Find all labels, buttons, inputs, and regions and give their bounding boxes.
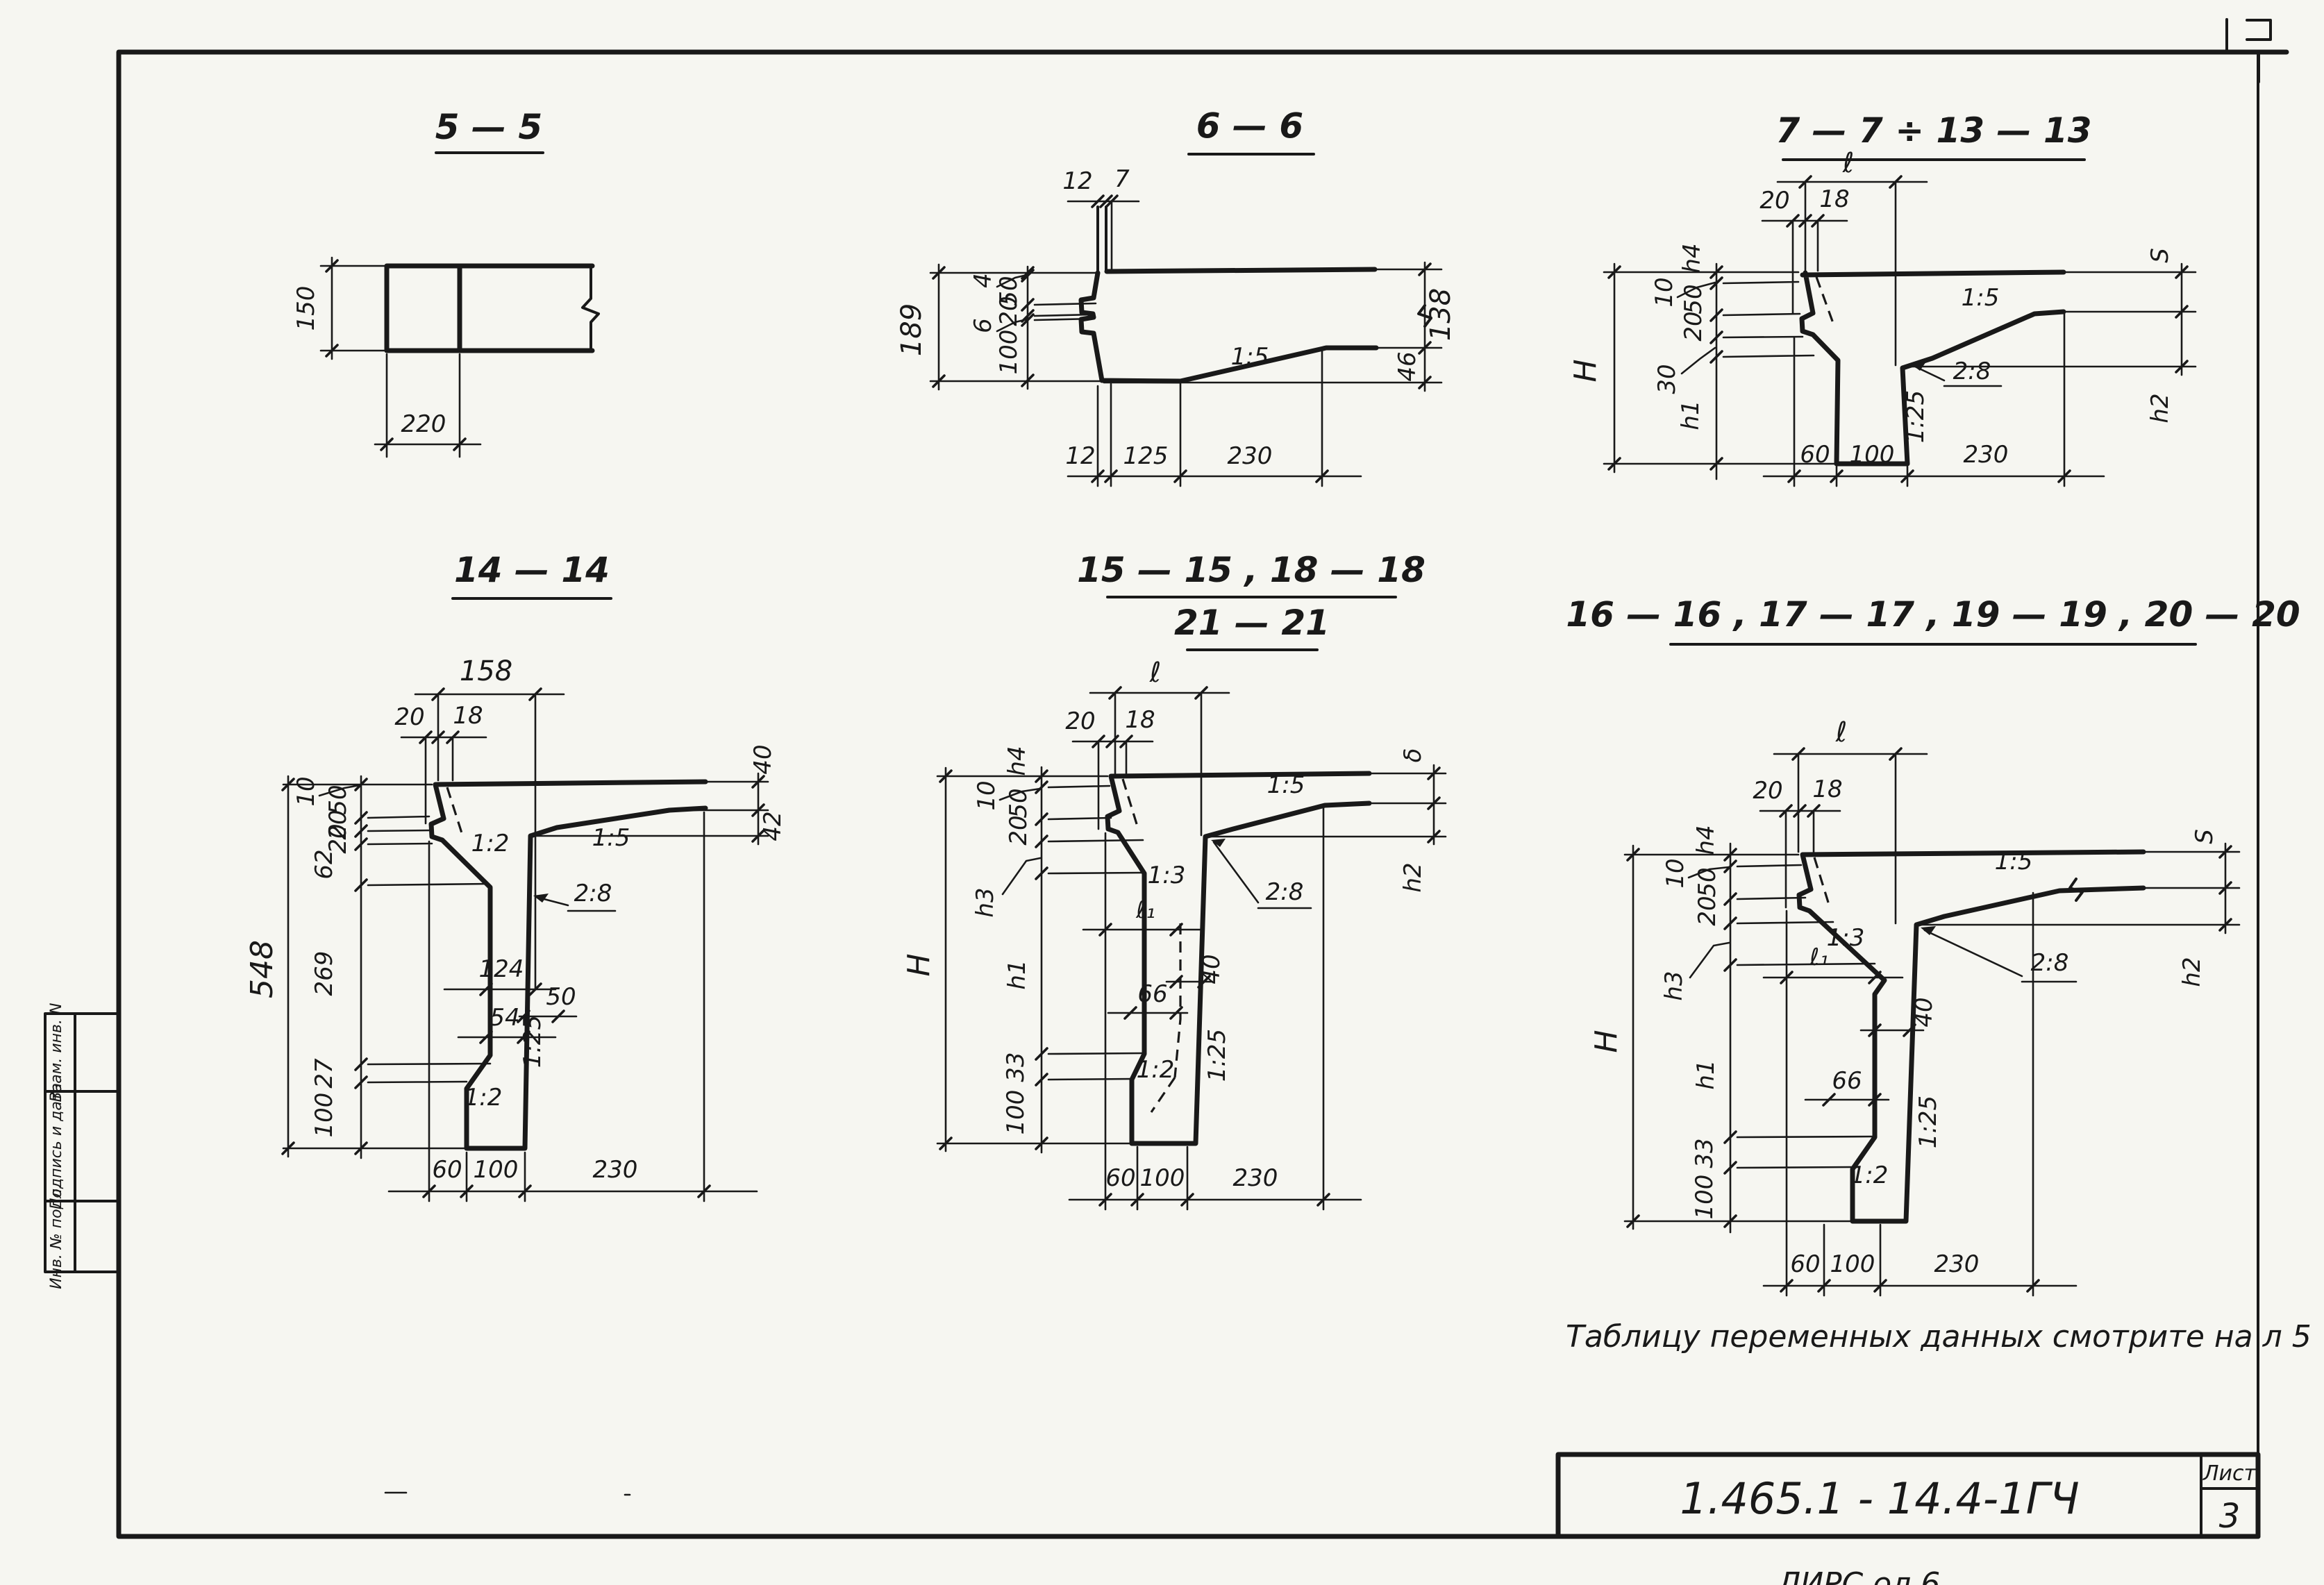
dim-label-54: 54 [490, 1004, 519, 1032]
dim-label: 20 [324, 823, 352, 853]
dim-label-150: 150 [292, 286, 320, 331]
dim-label: 6 [969, 318, 997, 333]
dim-label-l1: ℓ₁ [1809, 944, 1829, 971]
dim-label-20: 20 [1694, 896, 1721, 925]
dim-label: 18 [1819, 185, 1849, 213]
dim-label-delta: δ [1399, 748, 1427, 763]
dim-label: 12 [1065, 442, 1095, 470]
dim-label-h2: h2 [2146, 393, 2174, 423]
section-15-15-18-18-21-21: 15 — 15 , 18 — 18 21 — 21 ℓ 20 18 h4 10 … [901, 550, 1446, 1209]
dim-label: 100 [310, 1093, 338, 1138]
slope-label: 1:25 [519, 1015, 546, 1068]
dim-label-h2: h2 [2178, 957, 2206, 987]
dim-label: 7 [1114, 165, 1130, 193]
slope-label: 1:2 [465, 1084, 503, 1112]
slope-label: 1:5 [1962, 284, 2000, 312]
profile-path [1107, 773, 1369, 1143]
break-mark [583, 266, 599, 351]
dim-label: 125 [1123, 442, 1169, 470]
slope-label: 1:2 [471, 830, 510, 857]
dim-label-H: H [1589, 1030, 1624, 1053]
dim-label: 4 [969, 273, 997, 288]
section-6-6: 6 — 6 12 7 189 4 50 20 6 100 138 46 12 1… [896, 106, 1457, 486]
dim-label-h4: h4 [1692, 825, 1720, 855]
profile-path [387, 266, 592, 351]
dim-label: 60 [1105, 1164, 1135, 1192]
slope-label: 2:8 [1953, 358, 1991, 385]
dim-label-h1: h1 [1003, 959, 1031, 989]
slope-label: 1:5 [1995, 848, 2033, 875]
dim-label: 18 [1812, 775, 1842, 803]
slope-label: 1:2 [1137, 1056, 1175, 1084]
dim-label-33: 33 [1691, 1138, 1719, 1168]
dim-label: 20 [394, 703, 424, 731]
dim-label-548: 548 [244, 940, 280, 998]
profile-path [1802, 272, 2064, 464]
sheet-number: 3 [2219, 1497, 2241, 1536]
section-title: 16 — 16 , 17 — 17 , 19 — 19 , 20 — 20 [1566, 594, 2300, 635]
dim-label: 100 [1850, 441, 1895, 469]
dim-label-10: 10 [1650, 277, 1678, 307]
dim-label-10: 10 [292, 776, 320, 806]
dim-label-30: 30 [1653, 364, 1681, 394]
slope-label: 1:5 [1231, 343, 1269, 371]
dim-label-124: 124 [479, 955, 524, 983]
dim-label-40: 40 [1910, 997, 1938, 1027]
dim-label-50: 50 [1005, 788, 1033, 818]
dim-label-220: 220 [401, 410, 446, 438]
dim-label-66: 66 [1832, 1067, 1862, 1095]
stamp-column: Взам. инв. N Подпись и дата Инв. № подл. [45, 1003, 119, 1289]
profile-path [1081, 269, 1376, 381]
section-title-line2: 21 — 21 [1174, 603, 1330, 643]
section-5-5: 5 — 5 150 220 [292, 107, 599, 457]
dim-label-h3: h3 [1660, 971, 1688, 1000]
dim-label: 60 [1790, 1250, 1820, 1278]
dim-label: 27 [310, 1058, 338, 1089]
dim-label-h1: h1 [1692, 1059, 1720, 1089]
section-title: 5 — 5 [435, 107, 542, 147]
slope-label: 1:3 [1148, 862, 1186, 889]
dim-label: 18 [453, 702, 483, 730]
dim-label-50: 50 [546, 983, 576, 1011]
dim-label: 62 [310, 849, 338, 879]
stray-marks [385, 1493, 630, 1495]
dim-label-50: 50 [1680, 284, 1707, 314]
dim-label: 230 [1233, 1164, 1278, 1192]
dim-label-l: ℓ [1835, 716, 1848, 748]
slope-label: 1:5 [592, 824, 630, 852]
dim-label: 100 [1140, 1164, 1185, 1192]
section-title: 7 — 7 ÷ 13 — 13 [1775, 110, 2091, 151]
dim-label-33: 33 [1002, 1052, 1030, 1082]
dim-label-h2: h2 [1399, 862, 1427, 892]
section-title-line1: 15 — 15 , 18 — 18 [1077, 550, 1426, 590]
dim-label: 230 [1934, 1250, 1980, 1278]
dim-label-20: 20 [1005, 815, 1033, 845]
dim-label-20: 20 [1680, 311, 1707, 341]
dim-label: 100 [1830, 1250, 1875, 1278]
dim-label: 60 [432, 1156, 462, 1184]
dim-label-66: 66 [1137, 980, 1167, 1008]
dim-label-h4: h4 [1003, 746, 1031, 775]
dim-label-42: 42 [759, 811, 787, 841]
dim-label: 20 [995, 296, 1023, 326]
slope-label: 2:8 [2031, 949, 2069, 977]
variable-data-note: Таблицу переменных данных смотрите на л … [1566, 1319, 2312, 1355]
dim-label-50: 50 [1694, 867, 1721, 897]
dim-label-40: 40 [749, 744, 777, 774]
slope-label: 2:8 [574, 880, 612, 907]
sheet-word-label: Лист [2202, 1461, 2257, 1486]
dim-label-10: 10 [973, 780, 1001, 810]
lip-hidden-line [1814, 857, 1829, 905]
rib-lines [1098, 207, 1106, 271]
dim-label-H: H [901, 953, 937, 976]
slope-label: 1:25 [1914, 1096, 1942, 1148]
dim-label: 12 [1062, 167, 1092, 195]
sheet-frame [119, 19, 2287, 1536]
section-7-7-13-13: 7 — 7 ÷ 13 — 13 ℓ 20 18 h4 10 50 20 30 H… [1568, 110, 2196, 486]
dim-label-H: H [1568, 359, 1603, 382]
dim-label: 20 [1759, 187, 1789, 215]
dim-label-189: 189 [896, 303, 928, 356]
section-title: 14 — 14 [454, 550, 610, 590]
dim-label-40: 40 [1198, 954, 1226, 984]
document-number: 1.465.1 - 14.4-1ГЧ [1680, 1473, 2079, 1524]
dim-label: 100 [474, 1156, 519, 1184]
dim-label-l: ℓ [1149, 657, 1162, 689]
dim-label: 18 [1125, 706, 1155, 734]
lip-hidden-line [447, 787, 462, 835]
stamp-label-inv-podl: Инв. № подл. [48, 1184, 65, 1289]
slope-label: 1:5 [1267, 771, 1305, 799]
slope-label: 1:25 [1203, 1029, 1231, 1082]
drawing-sheet: Взам. инв. N Подпись и дата Инв. № подл.… [0, 0, 2324, 1585]
dim-label: 60 [1800, 441, 1830, 469]
section-title: 6 — 6 [1196, 106, 1303, 146]
drawing-canvas: Взам. инв. N Подпись и дата Инв. № подл.… [0, 0, 2324, 1585]
dim-label-10: 10 [1662, 858, 1689, 888]
dim-label-h4: h4 [1678, 243, 1706, 273]
dim-label: 230 [1228, 442, 1273, 470]
lip-hidden-line [1816, 277, 1834, 325]
slope-label: 2:8 [1266, 878, 1304, 906]
dim-label-46: 46 [1394, 351, 1421, 381]
dim-label: 20 [1753, 777, 1782, 805]
slope-label: 1:25 [1902, 390, 1930, 443]
dim-label-138: 138 [1425, 288, 1457, 341]
dim-label-S: S [2191, 829, 2218, 844]
dim-label: 20 [1065, 707, 1095, 735]
dim-label: 230 [1964, 441, 2009, 469]
dim-label-l1: ℓ₁ [1135, 896, 1155, 924]
dim-label-100: 100 [1691, 1175, 1719, 1220]
section-16-16-17-17-19-19-20-20: 16 — 16 , 17 — 17 , 19 — 19 , 20 — 20 ℓ … [1566, 594, 2300, 1295]
dim-label-l: ℓ [1842, 147, 1855, 179]
dim-label-100: 100 [1002, 1090, 1030, 1135]
slope-label: 1:3 [1827, 924, 1865, 952]
cut-off-text: ЛИРС ол 6 [1776, 1566, 1940, 1585]
dim-label-h1: h1 [1677, 400, 1705, 430]
section-14-14: 14 — 14 158 20 18 10 50 20 20 62 269 27 … [244, 550, 787, 1201]
dim-label-158: 158 [460, 655, 512, 687]
dim-label-h3: h3 [971, 887, 999, 917]
dim-label: 230 [593, 1156, 638, 1184]
dim-label: 269 [310, 951, 338, 996]
slope-label: 1:2 [1850, 1162, 1889, 1189]
dim-label-S: S [2146, 248, 2174, 263]
title-block: 1.465.1 - 14.4-1ГЧ Лист 3 [1558, 1454, 2258, 1536]
dim-label: 100 [995, 330, 1023, 375]
